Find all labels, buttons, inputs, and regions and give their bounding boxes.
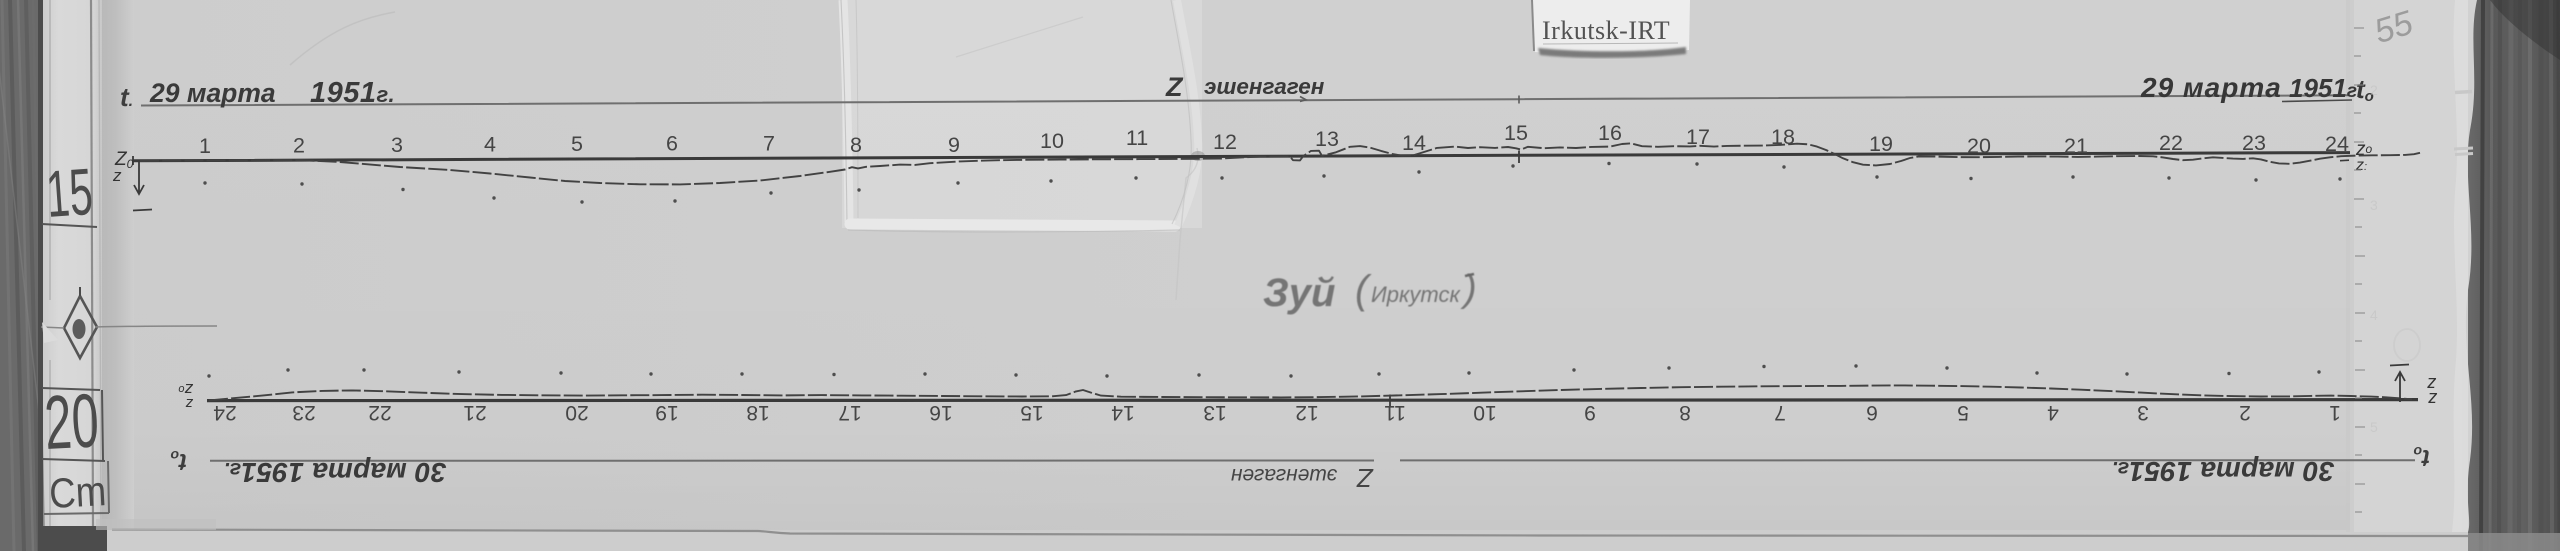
svg-text:эшенгаген: эшенгаген xyxy=(1204,74,1325,99)
svg-text:14: 14 xyxy=(1402,131,1426,155)
svg-text:24: 24 xyxy=(213,401,237,424)
svg-text:19: 19 xyxy=(1869,132,1893,156)
svg-text:6: 6 xyxy=(666,132,678,156)
svg-text:29 марта: 29 марта xyxy=(2140,72,2282,103)
svg-text:16: 16 xyxy=(1598,121,1622,145)
svg-text:17: 17 xyxy=(1686,125,1710,149)
svg-text:4: 4 xyxy=(2370,307,2378,323)
svg-text:12: 12 xyxy=(1213,130,1237,154)
svg-text:21: 21 xyxy=(463,401,486,424)
svg-text:15: 15 xyxy=(1020,401,1043,424)
svg-text:14: 14 xyxy=(1111,401,1135,424)
svg-text:30 марта 1951г.: 30 марта 1951г. xyxy=(224,457,447,488)
svg-text:z: z xyxy=(185,395,194,412)
svg-text:22: 22 xyxy=(368,401,391,424)
svg-text:3: 3 xyxy=(2137,401,2149,424)
svg-text:11: 11 xyxy=(1384,401,1406,424)
svg-text:z: z xyxy=(2428,389,2438,409)
svg-text:5: 5 xyxy=(2370,419,2378,435)
svg-text:20: 20 xyxy=(42,378,100,466)
svg-text:Иркутск: Иркутск xyxy=(1371,282,1461,307)
svg-text:20: 20 xyxy=(1967,134,1991,158)
svg-text:1: 1 xyxy=(2329,401,2341,424)
svg-text:23: 23 xyxy=(292,401,315,424)
svg-text:Irkutsk-IRT: Irkutsk-IRT xyxy=(1542,16,1670,45)
svg-text:4: 4 xyxy=(484,133,496,157)
svg-text:16: 16 xyxy=(929,401,952,424)
svg-text:3: 3 xyxy=(2370,197,2378,213)
svg-text:Зуй: Зуй xyxy=(1263,271,1335,315)
svg-text:1: 1 xyxy=(199,134,211,158)
svg-text:4: 4 xyxy=(2047,401,2059,424)
svg-text:8: 8 xyxy=(850,133,862,157)
svg-text:12: 12 xyxy=(1295,401,1318,424)
svg-text:7: 7 xyxy=(763,132,775,156)
svg-text:17: 17 xyxy=(838,401,861,424)
svg-text:1951г.: 1951г. xyxy=(310,77,395,109)
svg-text:22: 22 xyxy=(2159,131,2183,155)
svg-text:9: 9 xyxy=(1584,401,1596,424)
svg-text:10: 10 xyxy=(1473,401,1496,424)
svg-text:18: 18 xyxy=(1771,125,1795,149)
svg-text:10: 10 xyxy=(1040,129,1064,153)
svg-text:20: 20 xyxy=(565,401,588,424)
svg-text:15: 15 xyxy=(1504,121,1528,145)
svg-text:5: 5 xyxy=(1957,401,1969,424)
svg-text:13: 13 xyxy=(1315,127,1339,151)
svg-text:8: 8 xyxy=(1679,401,1691,424)
svg-text:23: 23 xyxy=(2242,131,2266,155)
svg-text:24: 24 xyxy=(2325,132,2349,156)
svg-text:z: z xyxy=(112,166,122,185)
svg-text:Z: Z xyxy=(1356,463,1374,493)
svg-text:6: 6 xyxy=(1866,401,1878,424)
svg-text:3: 3 xyxy=(391,133,403,157)
svg-text:19: 19 xyxy=(655,401,678,424)
svg-text:15: 15 xyxy=(44,154,95,231)
svg-text:7: 7 xyxy=(1774,401,1786,424)
svg-text:2: 2 xyxy=(293,134,305,158)
svg-text:2: 2 xyxy=(2239,401,2251,424)
svg-text:11: 11 xyxy=(1126,126,1148,150)
svg-text:эшенгаген: эшенгаген xyxy=(1230,464,1337,487)
svg-text:Cm: Cm xyxy=(48,467,107,517)
svg-text:5: 5 xyxy=(571,132,583,156)
svg-text:29 марта: 29 марта xyxy=(149,78,276,108)
svg-text:18: 18 xyxy=(746,401,769,424)
svg-text:21: 21 xyxy=(2064,134,2088,158)
svg-text:30 марта 1951г.: 30 марта 1951г. xyxy=(2112,456,2335,487)
svg-text:13: 13 xyxy=(1203,401,1226,424)
svg-text:2: 2 xyxy=(2370,82,2378,98)
svg-text:Z: Z xyxy=(1165,72,1184,102)
svg-text:9: 9 xyxy=(948,133,960,157)
